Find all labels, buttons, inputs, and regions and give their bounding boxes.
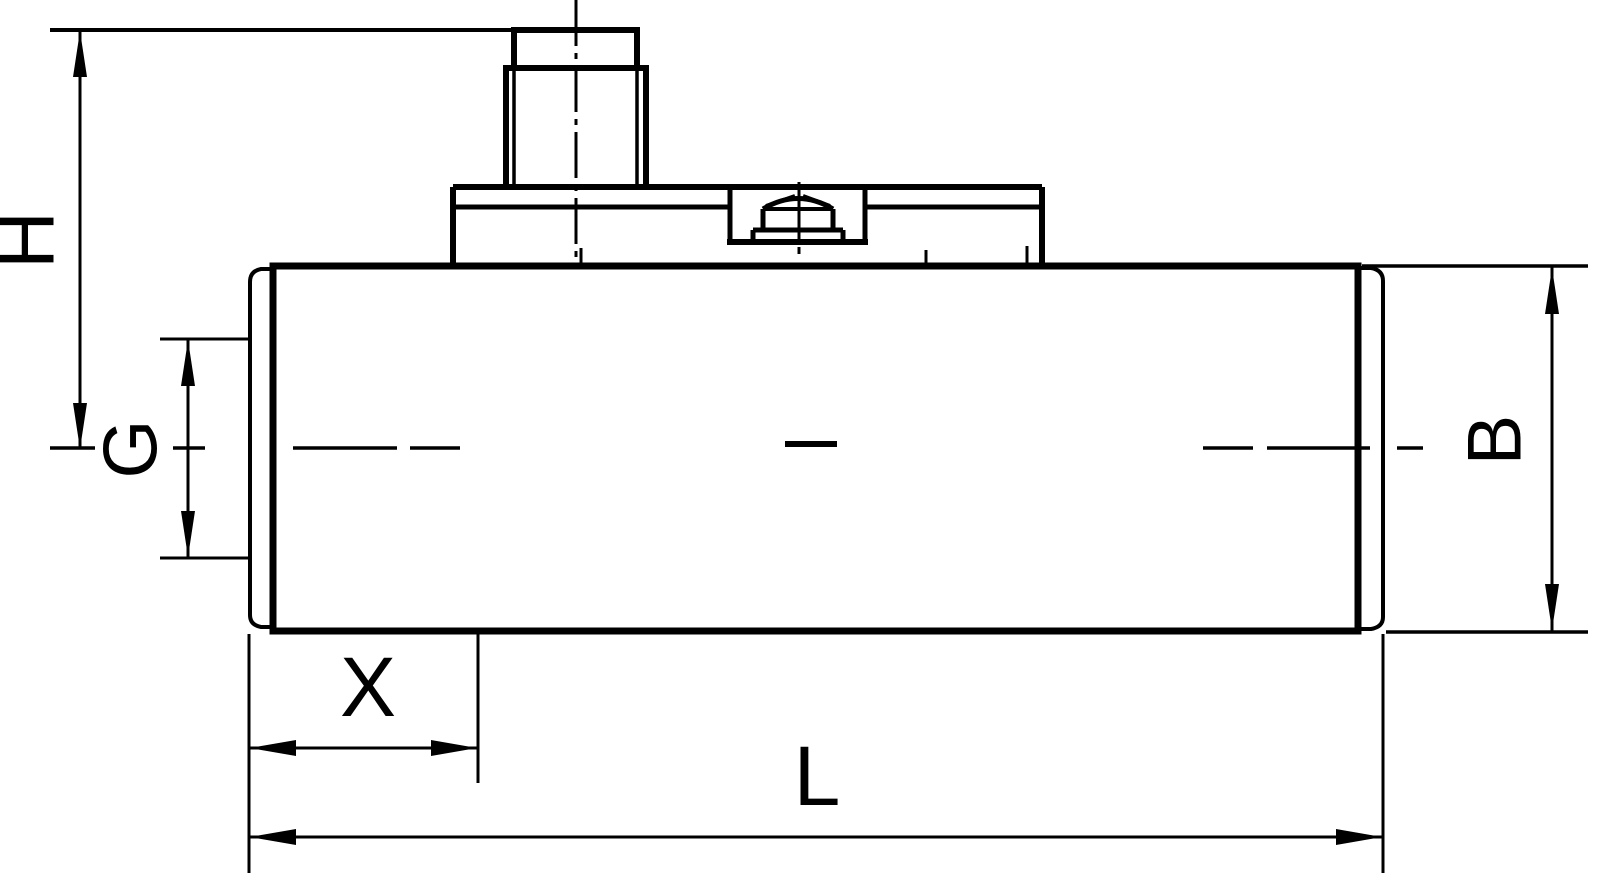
technical-drawing: H G B X L: [0, 0, 1600, 882]
dim-x-arrow-right: [431, 740, 477, 756]
drawing-canvas: H G B X L: [0, 0, 1600, 882]
dimension-label-x: X: [340, 640, 396, 734]
dimension-label-h: H: [0, 211, 71, 269]
dimension-l: L: [249, 634, 1383, 873]
dimension-g: G: [89, 339, 253, 558]
dim-b-arrow-top: [1545, 268, 1559, 314]
dimension-x: X: [249, 634, 478, 783]
dim-h-arrow-bottom: [73, 403, 87, 449]
top-plate: [453, 187, 1042, 266]
dim-h-arrow-top: [73, 31, 87, 77]
dimension-label-g: G: [89, 419, 174, 478]
dim-l-arrow-right: [1336, 829, 1382, 845]
dimension-h: H: [0, 30, 515, 449]
dim-g-arrow-bottom: [181, 511, 195, 557]
dimension-label-l: L: [794, 729, 841, 823]
dim-g-arrow-top: [181, 340, 195, 386]
dimension-b: B: [1362, 266, 1588, 632]
dim-l-arrow-left: [250, 829, 296, 845]
dim-x-arrow-left: [250, 740, 296, 756]
dimension-label-b: B: [1453, 415, 1538, 466]
centerlines: [50, 0, 1423, 448]
dim-b-arrow-bottom: [1545, 584, 1559, 630]
